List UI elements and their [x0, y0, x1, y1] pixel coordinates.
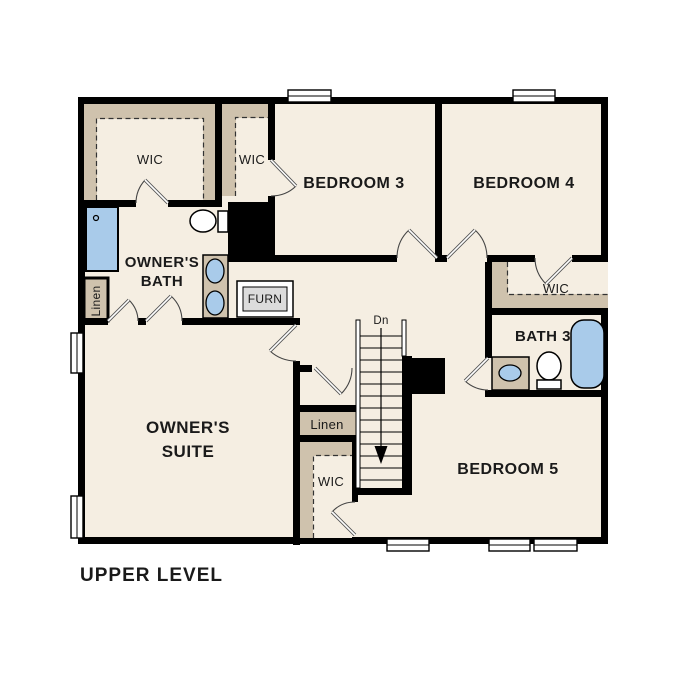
bedroom3-wic-shelving [222, 104, 268, 196]
sink-icon [499, 365, 521, 381]
toilet-tank [537, 380, 561, 389]
floor-plan: WIC WIC BEDROOM 3 BEDROOM 4 OWNER'S BATH… [0, 0, 687, 687]
plan-title: UPPER LEVEL [80, 565, 223, 586]
sink-icon [206, 291, 224, 315]
window [288, 90, 331, 102]
bedroom5-label: BEDROOM 5 [457, 461, 558, 478]
furnace-label: FURN [248, 292, 283, 306]
owners-bath-label-2: BATH [141, 273, 184, 290]
owners-wic-label: WIC [137, 152, 163, 167]
owners-bath-label-1: OWNER'S [125, 254, 200, 271]
window [71, 333, 83, 373]
owners-bath-toilet [190, 210, 228, 232]
window [513, 90, 555, 102]
owners-suite-label-1: OWNER'S [146, 418, 230, 437]
bedroom4-wic-label: WIC [543, 281, 569, 296]
stairs-down-label: Dn [373, 315, 388, 327]
floor-plan-page: WIC WIC BEDROOM 3 BEDROOM 4 OWNER'S BATH… [0, 0, 687, 687]
left-linen-label: Linen [89, 286, 103, 317]
hall-linen-label: Linen [310, 417, 343, 432]
window [387, 539, 429, 551]
bedroom3-label: BEDROOM 3 [303, 175, 404, 192]
owners-bath-vanity [203, 255, 228, 318]
window [534, 539, 577, 551]
toilet [537, 352, 561, 380]
bedroom5-wic-label: WIC [318, 474, 344, 489]
bedroom3-wic-label: WIC [239, 152, 265, 167]
window [71, 496, 83, 538]
bath3-label: BATH 3 [515, 328, 571, 345]
sink-icon [206, 259, 224, 283]
shower [86, 207, 118, 271]
owners-suite-label-2: SUITE [162, 442, 215, 461]
bedroom4-label: BEDROOM 4 [473, 175, 574, 192]
bathtub [571, 320, 604, 388]
window [489, 539, 530, 551]
